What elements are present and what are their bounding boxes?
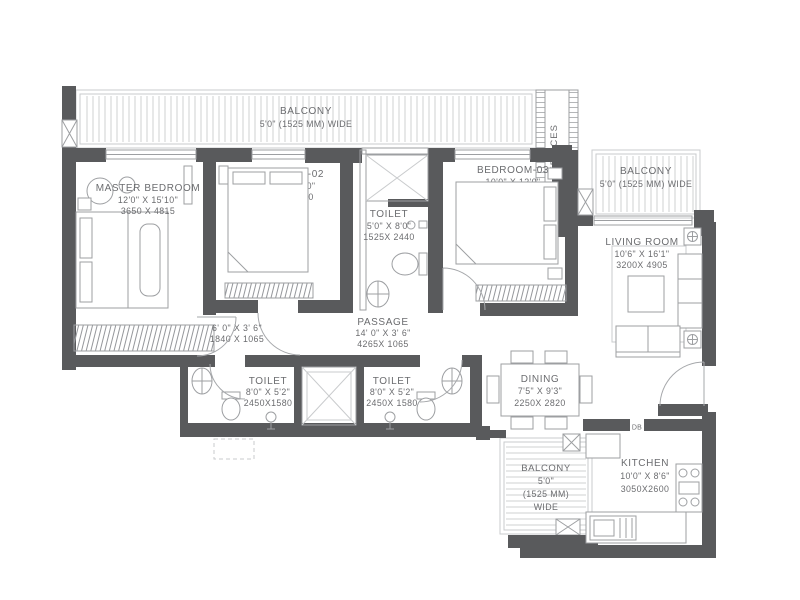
toilet-right-name: TOILET [373,376,411,387]
balcony-bottom-l3: (1525 MM) [523,489,569,499]
toilet-top: TOILET 5'0" X 8'0" 1525X 2440 [360,150,428,310]
master-size-mm: 3650 X 4815 [121,206,175,216]
master-bedroom: MASTER BEDROOM 12'0" X 15'10" 3650 X 481… [74,166,214,351]
passage: 6' 0" X 3' 6" 1840 X 1065 PASSAGE 14' 0"… [210,317,411,349]
balcony-right-size: 5'0" (1525 MM) WIDE [600,179,693,189]
kitchen: DB KITCHEN 10'0" X 8'6" 3050X2600 [586,425,702,544]
dining: DINING 7'5" X 9'3" 2250X 2820 [487,351,592,429]
toilet-left: TOILET 8'0" X 5'2" 2450X1580 [192,368,292,459]
passage-left-size-ft: 6' 0" X 3' 6" [212,323,262,333]
dining-size-mm: 2250X 2820 [514,398,565,408]
passage-size-mm: 4265X 1065 [357,339,408,349]
living-size-mm: 3200X 4905 [616,260,667,270]
kitchen-name: KITCHEN [621,458,669,469]
kitchen-size-mm: 3050X2600 [621,484,670,494]
bedroom3-name: BEDROOM-03 [477,165,549,176]
wc-left [222,398,240,420]
shower-head-left [266,412,276,422]
balcony-top-size: 5'0" (1525 MM) WIDE [260,119,353,129]
shower-head-right [385,412,395,422]
bedroom3-bed [456,182,558,264]
sofa-right [678,254,702,328]
balcony-bottom-l2: 5'0" [538,476,554,486]
dining-size-ft: 7'5" X 9'3" [518,386,562,396]
coffee-table [628,276,664,312]
balcony-bottom-l4: WIDE [534,502,559,512]
toilet-right-size-ft: 8'0" X 5'2" [370,387,414,397]
toilet-right: TOILET 8'0" X 5'2" 2450X 1580 [366,368,462,429]
floor-plan-drawing: BALCONY 5'0" (1525 MM) WIDE SERVICES BAL… [0,0,800,600]
passage-left-size-mm: 1840 X 1065 [210,334,264,344]
bedroom3-wardrobe [476,285,566,301]
toilet-top-name: TOILET [370,209,408,220]
balcony-right-name: BALCONY [620,166,672,177]
balcony-top-name: BALCONY [280,106,332,117]
lift-shaft [302,367,356,425]
entrance-door [660,362,704,406]
toilet-top-size-mm: 1525X 2440 [363,232,414,242]
living-name: LIVING ROOM [605,237,678,248]
bedroom-02: BEDROOM-02 10'0" X 12'0" 3060X 3650 [219,166,324,298]
passage-size-ft: 14' 0" X 3' 6" [355,328,410,338]
master-wardrobe [74,325,214,351]
floor-plan-page: BALCONY 5'0" (1525 MM) WIDE SERVICES BAL… [0,0,800,600]
balcony-bottom-name: BALCONY [521,463,571,474]
toilet-left-size-mm: 2450X1580 [244,398,293,408]
db-label: DB [632,425,642,432]
bedroom2-wardrobe [225,283,313,298]
master-name: MASTER BEDROOM [96,183,201,194]
toilet-left-name: TOILET [249,376,287,387]
passage-name: PASSAGE [357,317,408,328]
fridge [586,434,620,458]
balcony-top: BALCONY 5'0" (1525 MM) WIDE [76,90,536,148]
living-size-ft: 10'6" X 16'1" [615,249,670,259]
balcony-right: BALCONY 5'0" (1525 MM) WIDE [592,150,700,218]
living-room: LIVING ROOM 10'6" X 16'1" 3200X 4905 [605,228,702,357]
toilet-top-size-ft: 5'0" X 8'0" [367,221,411,231]
wc-top [392,253,418,275]
master-size-ft: 12'0" X 15'10" [118,195,178,205]
kitchen-size-ft: 10'0" X 8'6" [620,471,670,481]
dining-name: DINING [521,374,560,385]
toilet-right-size-mm: 2450X 1580 [366,398,417,408]
balcony-bottom: BALCONY 5'0" (1525 MM) WIDE [500,434,592,535]
toilet-left-size-ft: 8'0" X 5'2" [246,387,290,397]
bedroom2-door [258,313,300,355]
